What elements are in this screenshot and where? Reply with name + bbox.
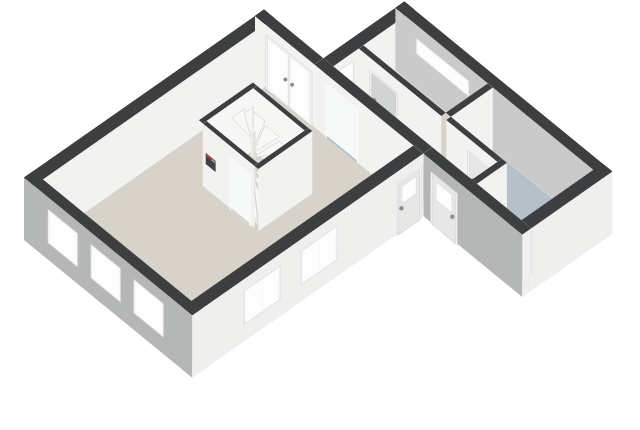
floorplan-3d-view bbox=[0, 0, 640, 430]
floorplan-canvas bbox=[0, 0, 640, 430]
